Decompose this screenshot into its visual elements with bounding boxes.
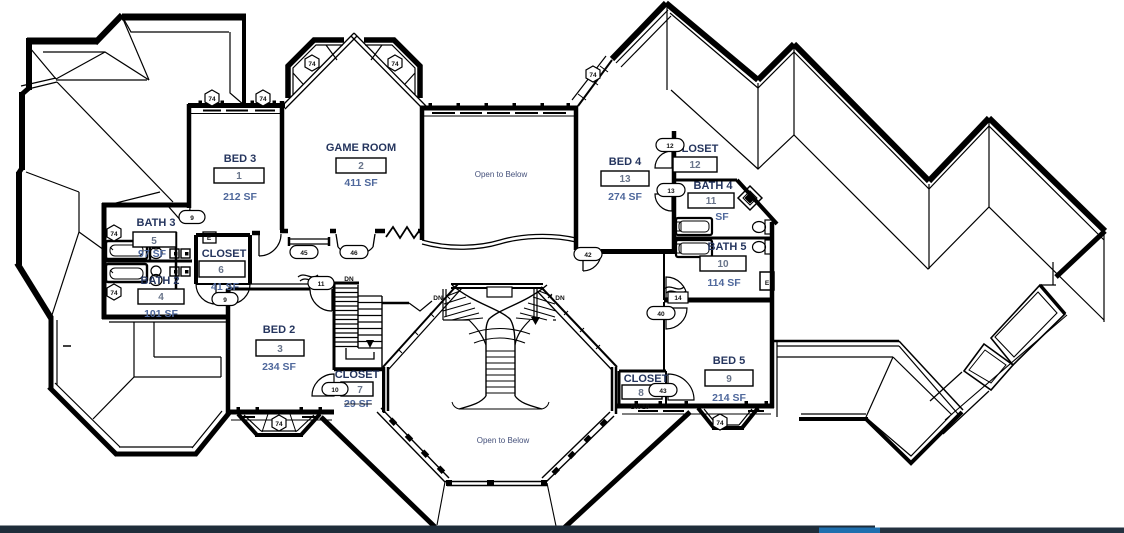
svg-text:74: 74 [275,421,283,428]
svg-text:274 SF: 274 SF [608,191,642,203]
svg-text:BED 5: BED 5 [713,355,745,367]
svg-text:9: 9 [190,215,194,222]
svg-text:BATH 4: BATH 4 [694,180,734,192]
svg-text:E: E [207,235,212,242]
svg-text:42: 42 [584,252,592,259]
svg-text:46: 46 [350,250,358,257]
svg-text:14: 14 [674,295,682,302]
svg-text:10: 10 [331,387,339,394]
svg-text:BED 2: BED 2 [263,324,295,336]
svg-text:40: 40 [657,311,665,318]
svg-text:74: 74 [208,96,216,103]
svg-text:2: 2 [358,161,364,172]
svg-text:74: 74 [259,96,267,103]
svg-text:212 SF: 212 SF [223,191,257,203]
svg-text:DN: DN [433,295,443,302]
svg-text:97 SF: 97 SF [138,248,167,260]
svg-text:Open to Below: Open to Below [475,170,528,179]
svg-text:CLOSET: CLOSET [202,248,247,260]
svg-text:234 SF: 234 SF [262,361,296,373]
svg-text:9: 9 [726,374,732,385]
svg-text:DN 19: DN 19 [631,404,650,411]
svg-text:74: 74 [110,231,118,238]
svg-text:BED 4: BED 4 [609,156,642,168]
svg-text:BATH 5: BATH 5 [708,241,747,253]
svg-text:E: E [765,280,770,287]
svg-text:74: 74 [716,420,724,427]
svg-text:74: 74 [110,290,118,297]
svg-text:10: 10 [717,259,729,270]
svg-text:DN: DN [344,276,354,283]
svg-text:BED 3: BED 3 [224,153,256,165]
svg-text:74: 74 [308,61,316,68]
svg-text:5: 5 [151,236,157,247]
svg-text:9: 9 [223,297,227,304]
svg-text:74: 74 [391,61,399,68]
svg-text:74: 74 [589,72,597,79]
svg-text:Open to Below: Open to Below [477,436,530,445]
svg-text:12: 12 [689,160,701,171]
svg-text:114 SF: 114 SF [707,277,741,289]
svg-text:3: 3 [277,344,283,355]
svg-text:8: 8 [638,388,644,399]
svg-text:6: 6 [218,265,224,276]
svg-text:43: 43 [659,388,667,395]
svg-text:41 SF: 41 SF [211,281,240,293]
svg-text:BATH 2: BATH 2 [141,275,180,287]
svg-text:411 SF: 411 SF [344,177,378,189]
svg-text:7: 7 [357,385,363,396]
svg-text:BATH 3: BATH 3 [137,217,176,229]
svg-text:DN: DN [555,295,565,302]
svg-text:45: 45 [300,250,308,257]
svg-text:214 SF: 214 SF [712,392,746,404]
svg-text:SF: SF [715,211,729,223]
svg-text:1: 1 [236,171,242,182]
svg-text:GAME ROOM: GAME ROOM [326,142,396,154]
svg-text:12: 12 [666,143,674,150]
svg-text:CLOSET: CLOSET [335,369,380,381]
svg-text:13: 13 [667,188,675,195]
svg-text:11: 11 [706,196,717,207]
svg-text:101 SF: 101 SF [144,308,178,320]
svg-text:4: 4 [158,292,164,303]
svg-text:11: 11 [318,281,325,288]
svg-text:13: 13 [619,174,631,185]
